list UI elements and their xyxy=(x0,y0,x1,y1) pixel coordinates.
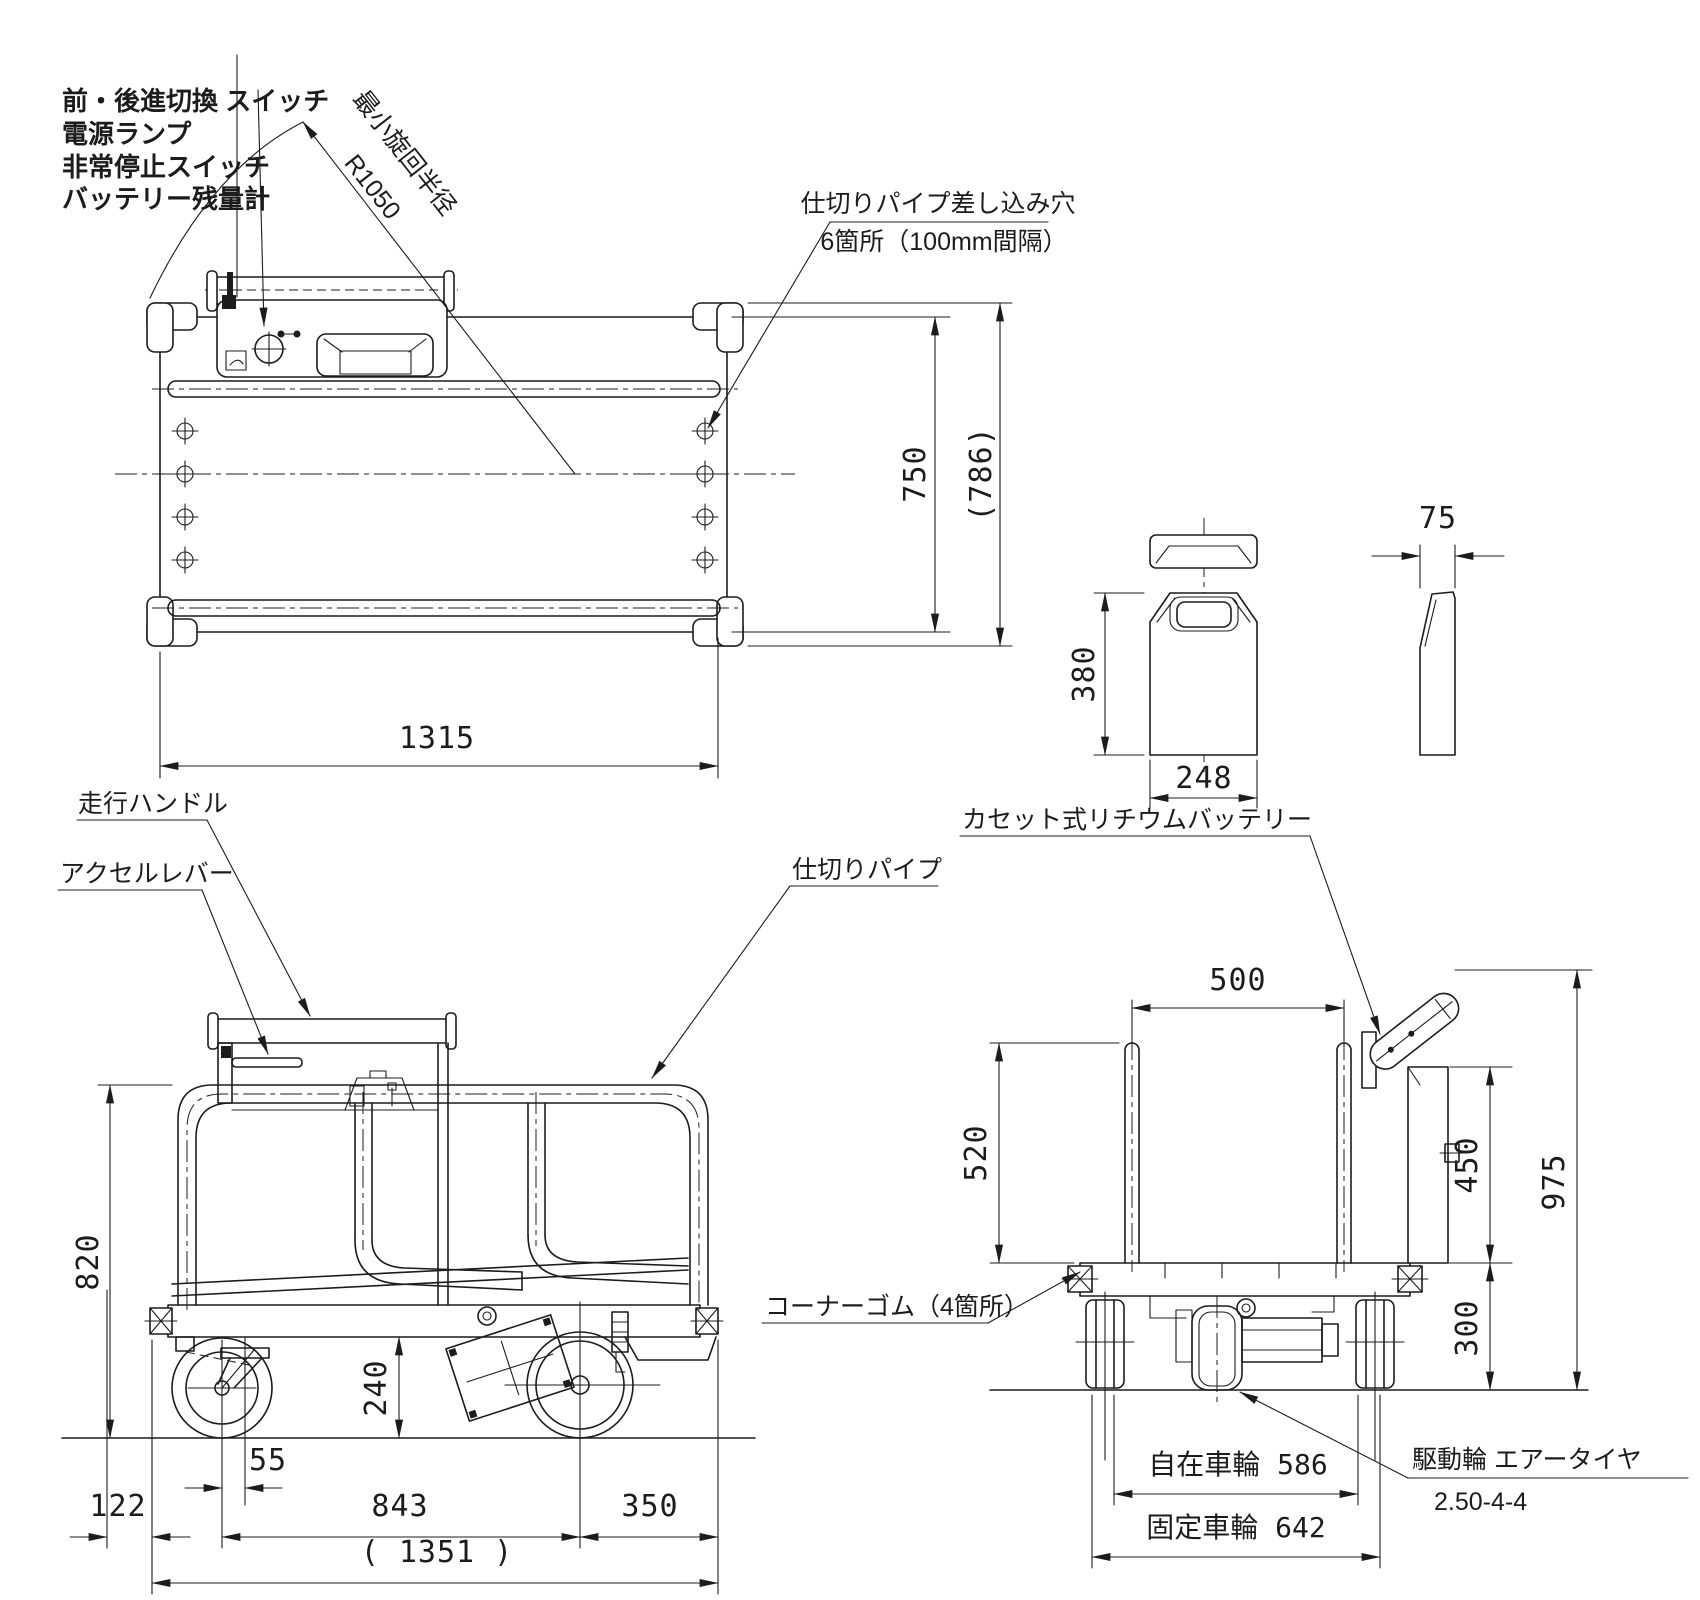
accel-lever-side xyxy=(232,1058,302,1067)
battery-detail: 380 248 75 xyxy=(1067,501,1504,808)
dim-text-975: 975 xyxy=(1537,1153,1572,1210)
dim-swivel-586: 自在車輪 586 xyxy=(1114,1395,1358,1505)
dim-122: 122 xyxy=(70,1290,190,1594)
motor-side xyxy=(446,1315,574,1421)
dim-500: 500 xyxy=(1132,963,1344,1040)
dim-text-750: 750 xyxy=(898,445,933,502)
dim-text-55: 55 xyxy=(249,1443,287,1478)
partition-pipes-side xyxy=(172,1092,688,1296)
callout-drive-wheel-line2: 2.50-4-4 xyxy=(1434,1488,1527,1516)
dim-text-843: 843 xyxy=(371,1489,428,1524)
rear-view: 500 520 450 300 975 自在車輪 586 xyxy=(762,806,1688,1568)
callout-accel-lever-text: アクセルレバー xyxy=(60,860,234,888)
dim-text-300: 300 xyxy=(1450,1299,1485,1356)
battery-cap xyxy=(1150,535,1257,568)
partition-pipe-row-bottom xyxy=(152,600,738,616)
callout-partition-holes-line2: 6箇所（100mm間隔） xyxy=(820,228,1067,256)
dim-text-75: 75 xyxy=(1419,501,1457,536)
callout-cassette-battery: カセット式リチウムバッテリー xyxy=(960,806,1380,1034)
pipe-frame-side xyxy=(178,1085,708,1310)
callout-travel-handle-text: 走行ハンドル xyxy=(78,790,228,818)
battery-body-front xyxy=(1150,593,1257,755)
top-view: 750 (786) 1315 仕切りパイプ差し込み穴 6箇所（100mm間隔） … xyxy=(62,55,1076,778)
dim-55: 55 xyxy=(185,1443,287,1488)
dim-520: 520 xyxy=(959,1043,1119,1263)
dim-text-122: 122 xyxy=(89,1489,146,1524)
rear-wheel-left xyxy=(1076,1292,1134,1460)
dim-text-1351: ( 1351 ) xyxy=(361,1535,514,1570)
dim-240: 240 xyxy=(359,1337,399,1438)
dim-text-1315: 1315 xyxy=(399,721,475,756)
callout-power-lamp: 電源ランプ xyxy=(62,119,192,149)
side-view: 820 240 122 55 843 350 ( 13 xyxy=(58,790,942,1594)
battery-body-side xyxy=(1420,592,1455,755)
dim-300: 300 xyxy=(1450,1263,1490,1390)
dim-1351: ( 1351 ) xyxy=(152,1535,718,1583)
dim-text-350: 350 xyxy=(621,1489,678,1524)
handle-assembly-side xyxy=(208,1013,456,1305)
dim-text-820: 820 xyxy=(71,1233,106,1290)
callout-drive-wheel-line1: 駆動輪 エアータイヤ xyxy=(1412,1446,1642,1474)
corner-rubber-rear-right xyxy=(1392,1266,1428,1292)
dim-text-swivel-586: 自在車輪 586 xyxy=(1148,1448,1327,1481)
callout-partition-holes-line1: 仕切りパイプ差し込み穴 xyxy=(800,190,1075,218)
emergency-stop-button xyxy=(222,295,236,309)
callout-battery-gauge: バッテリー残量計 xyxy=(62,184,270,214)
callout-control-block: 前・後進切換 スイッチ 電源ランプ 非常停止スイッチ バッテリー残量計 xyxy=(62,86,329,214)
battery-mast-rear xyxy=(1362,987,1465,1263)
dim-1315: 1315 xyxy=(160,638,718,778)
cart-technical-drawing: 750 (786) 1315 仕切りパイプ差し込み穴 6箇所（100mm間隔） … xyxy=(0,0,1700,1600)
callout-emergency-stop: 非常停止スイッチ xyxy=(62,152,270,182)
partition-pipes-rear xyxy=(1125,1038,1351,1272)
control-panel-top-view xyxy=(217,272,447,377)
rear-wheel-right xyxy=(1346,1292,1404,1460)
callout-accel-lever: アクセルレバー xyxy=(58,860,268,1054)
dim-text-786: (786) xyxy=(964,426,999,521)
dim-text-450: 450 xyxy=(1450,1136,1485,1193)
corner-rubber-side-right xyxy=(691,1308,723,1334)
dim-843: 843 xyxy=(222,1489,580,1537)
dim-text-fixed-642: 固定車輪 642 xyxy=(1146,1511,1325,1544)
dim-380: 380 xyxy=(1067,593,1144,755)
callout-partition-pipe: 仕切りパイプ xyxy=(652,856,942,1078)
dim-820: 820 xyxy=(71,1085,172,1438)
pipe-insertion-holes xyxy=(172,418,718,573)
dim-fixed-642: 固定車輪 642 xyxy=(1092,1395,1380,1568)
dim-75: 75 xyxy=(1372,501,1504,588)
callout-travel-handle: 走行ハンドル xyxy=(77,790,310,1016)
dim-248: 248 xyxy=(1150,760,1257,808)
dim-text-240: 240 xyxy=(359,1359,394,1416)
callout-corner-rubber: コーナーゴム（4箇所） xyxy=(762,1272,1080,1323)
rear-view-deck xyxy=(1080,1263,1410,1296)
dim-text-380: 380 xyxy=(1067,645,1102,702)
cad-drawing-page: 750 (786) 1315 仕切りパイプ差し込み穴 6箇所（100mm間隔） … xyxy=(0,0,1700,1600)
dim-text-500: 500 xyxy=(1209,963,1266,998)
dim-350: 350 xyxy=(580,1340,718,1594)
drive-unit-rear xyxy=(1150,1296,1338,1402)
callout-partition-pipe-text: 仕切りパイプ xyxy=(792,856,942,884)
callout-partition-holes: 仕切りパイプ差し込み穴 6箇所（100mm間隔） xyxy=(708,190,1076,428)
callout-switch: 前・後進切換 スイッチ xyxy=(62,86,329,116)
corner-rubber-side-left xyxy=(145,1308,177,1334)
dim-text-520: 520 xyxy=(959,1124,994,1181)
callout-cassette-battery-text: カセット式リチウムバッテリー xyxy=(962,806,1312,834)
callout-corner-rubber-text: コーナーゴム（4箇所） xyxy=(765,1293,1029,1321)
dim-text-248: 248 xyxy=(1175,761,1232,796)
partition-pipe-row-top xyxy=(152,381,738,397)
motor-rear xyxy=(1242,1318,1322,1362)
